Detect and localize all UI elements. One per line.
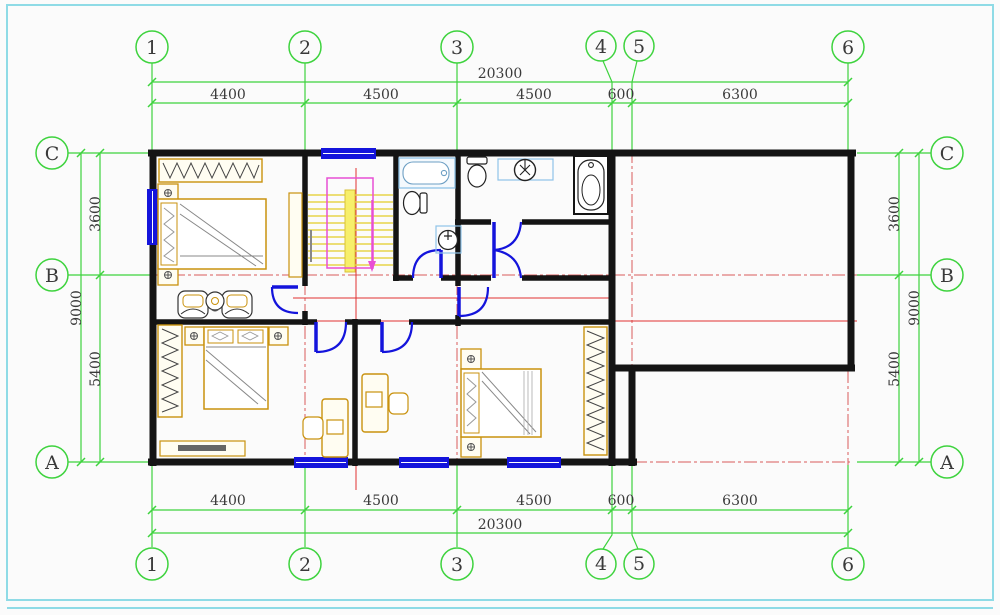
grid-label: 3 [451, 37, 463, 59]
dim-bottom-overall: 20300 [478, 517, 523, 533]
tv-cabinet-icon [160, 441, 245, 456]
door-hall-east [459, 287, 488, 316]
dim-right-overall: 9000 [907, 290, 923, 326]
bathroom-fixtures [399, 156, 608, 253]
grid-label: 2 [299, 554, 311, 576]
double-bed-icon [204, 327, 268, 409]
floor-plan-svg: 1 2 3 4 5 6 1 2 3 4 5 6 C B A C B A 2030… [0, 0, 1000, 615]
bedroom3-wardrobe-icon [158, 325, 182, 417]
grid-label: A [939, 452, 954, 474]
tv-icon [178, 445, 226, 451]
door-bedroom3 [316, 322, 346, 352]
corner-desk-icon [303, 399, 348, 457]
stair-stringer [345, 190, 355, 272]
grid-label: 4 [595, 36, 607, 58]
grid-label: C [45, 143, 60, 165]
double-bed-icon [158, 199, 266, 269]
staircase [308, 178, 393, 272]
grid-label: 5 [633, 36, 645, 58]
bathtub-icon [574, 156, 608, 214]
grid-label: 3 [451, 554, 463, 576]
double-bed-icon [461, 369, 541, 437]
monitor-icon [366, 392, 382, 407]
desk-chair-icon [389, 393, 408, 414]
dim-left-seg2: 5400 [88, 351, 104, 387]
grid-label: 1 [146, 554, 158, 576]
door-closet-double [494, 222, 521, 278]
dim-bottom-seg3: 4500 [516, 493, 552, 509]
grid-label: B [45, 265, 59, 287]
grid-label: 1 [146, 37, 158, 59]
grid-label: 2 [299, 37, 311, 59]
dim-left-overall: 9000 [69, 290, 85, 326]
grid-label: A [44, 452, 59, 474]
desk-chair-icon [303, 417, 323, 439]
study-desk-icon [362, 374, 408, 432]
dim-bottom-seg4: 600 [608, 493, 635, 509]
dim-top-seg3: 4500 [516, 87, 552, 103]
door-bedroom1 [272, 287, 298, 313]
dim-right-seg2: 5400 [887, 351, 903, 387]
shelf-icon [289, 193, 302, 277]
grid-label: 5 [633, 553, 645, 575]
grid-label: B [940, 265, 954, 287]
door-bathroom1 [413, 250, 441, 278]
dim-bottom-seg1: 4400 [210, 493, 246, 509]
side-table-icon [206, 292, 224, 311]
stair-direction-arrow [368, 261, 376, 272]
bedroom1-wardrobe-icon [159, 159, 262, 182]
grid-label: 6 [842, 554, 854, 576]
dim-bottom-seg2: 4500 [363, 493, 399, 509]
dim-top-seg2: 4500 [363, 87, 399, 103]
cad-floor-plan-drawing: 1 2 3 4 5 6 1 2 3 4 5 6 C B A C B A 2030… [0, 0, 1000, 615]
dim-top-seg1: 4400 [210, 87, 246, 103]
monitor-icon [327, 420, 343, 434]
bedroom2-wardrobe-icon [584, 327, 607, 455]
sink-counter-icon [498, 159, 553, 181]
dim-bottom-seg5: 6300 [722, 493, 758, 509]
toilet-icon [467, 157, 487, 187]
grid-label: 6 [842, 37, 854, 59]
dim-top-seg5: 6300 [722, 87, 758, 103]
dim-right-seg1: 3600 [887, 196, 903, 232]
dim-top-overall: 20300 [478, 66, 523, 82]
grid-label: C [940, 143, 955, 165]
grid-bubbles [36, 31, 963, 580]
furniture [158, 159, 607, 457]
door-study [382, 322, 412, 352]
dim-left-seg1: 3600 [88, 196, 104, 232]
dim-top-seg4: 600 [608, 87, 635, 103]
toilet-icon [404, 192, 428, 215]
bathtub-icon [399, 158, 455, 188]
grid-label: 4 [595, 553, 607, 575]
